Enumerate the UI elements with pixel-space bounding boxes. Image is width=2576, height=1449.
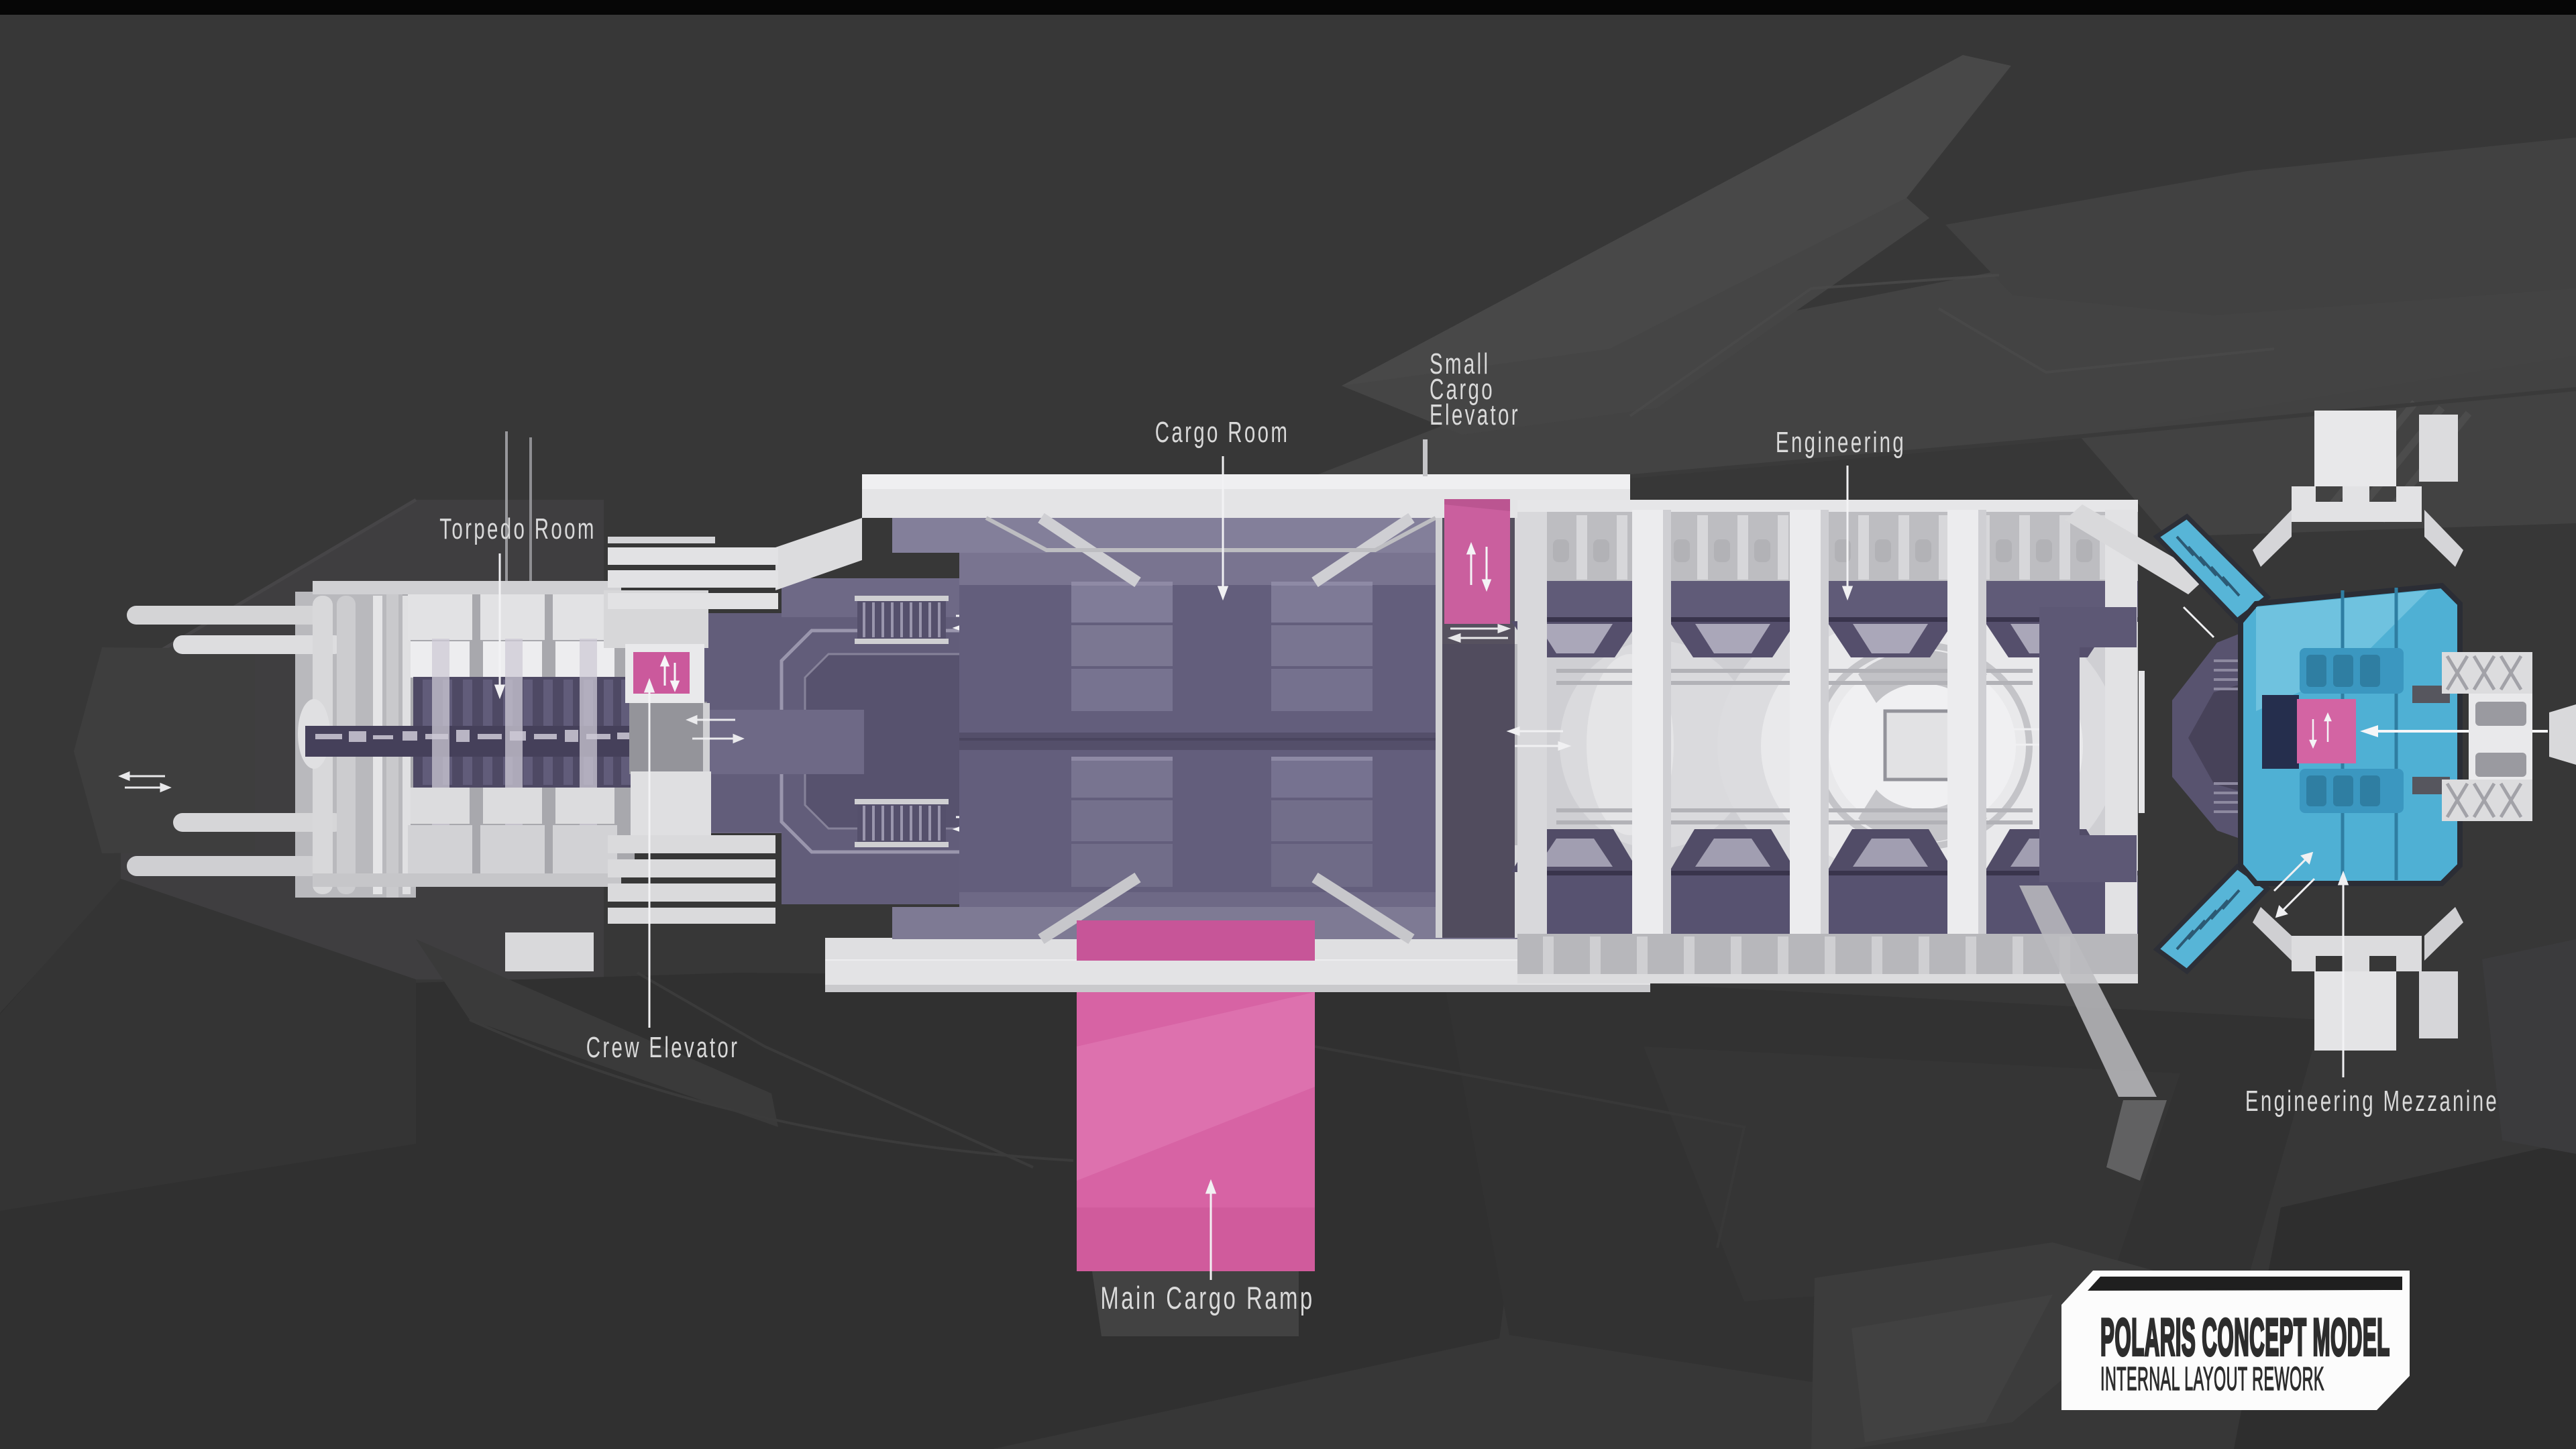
svg-text:Elevator: Elevator	[1430, 398, 1520, 431]
svg-text:Engineering: Engineering	[1776, 425, 1906, 458]
svg-text:Torpedo Room: Torpedo Room	[439, 512, 596, 545]
svg-text:Engineering Mezzanine: Engineering Mezzanine	[2245, 1084, 2499, 1117]
svg-text:Main Cargo Ramp: Main Cargo Ramp	[1100, 1280, 1314, 1316]
svg-text:Cargo Room: Cargo Room	[1155, 415, 1290, 448]
svg-text:INTERNAL LAYOUT REWORK: INTERNAL LAYOUT REWORK	[2100, 1361, 2324, 1398]
svg-text:POLARIS CONCEPT MODEL: POLARIS CONCEPT MODEL	[2100, 1307, 2390, 1366]
svg-text:Crew Elevator: Crew Elevator	[586, 1030, 740, 1063]
